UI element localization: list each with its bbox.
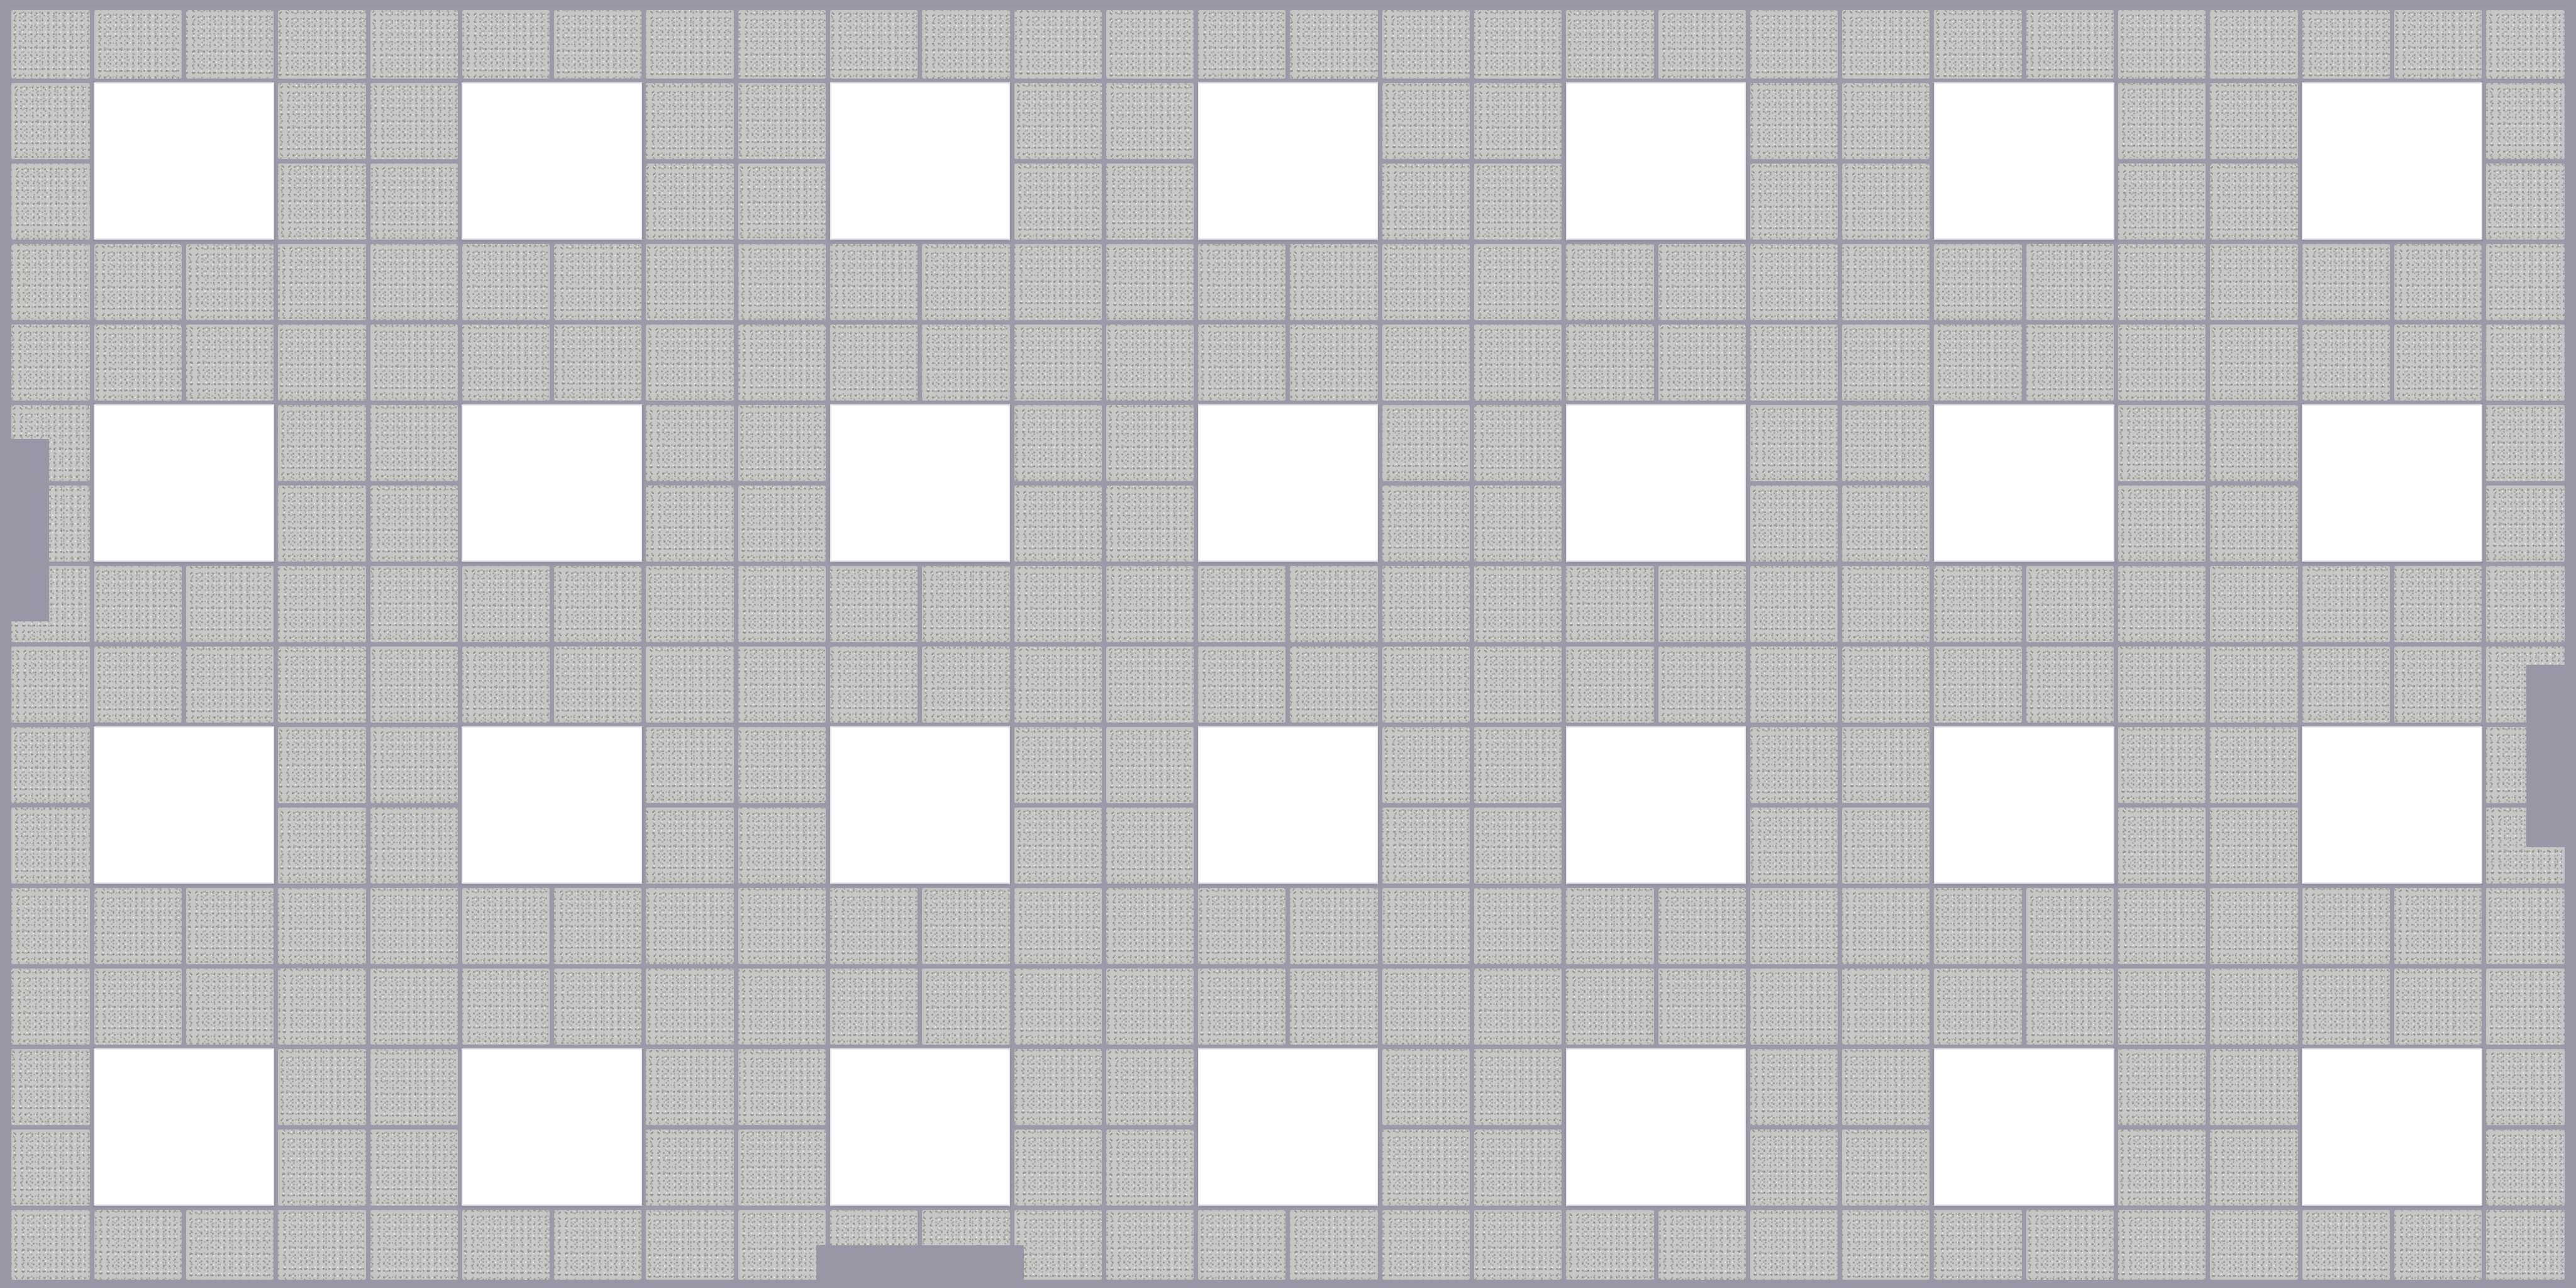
floor-tile xyxy=(1750,405,1838,481)
floor-tile xyxy=(1014,1210,1102,1280)
floor-tile xyxy=(738,244,826,320)
floor-tile xyxy=(1474,83,1562,159)
floor-tile xyxy=(1842,1210,1929,1280)
doorway-right xyxy=(2526,665,2576,847)
floor-tile xyxy=(1842,566,1929,642)
floor-tile xyxy=(94,1210,182,1280)
floor-tile xyxy=(370,808,458,884)
floor-tile xyxy=(11,325,90,401)
floor-tile xyxy=(1750,486,1838,562)
floor-tile xyxy=(370,244,458,320)
pillar-panel xyxy=(1566,82,1746,240)
floor-tile xyxy=(2394,1210,2482,1280)
floor-tile xyxy=(1014,486,1102,562)
floor-tile xyxy=(830,888,918,964)
floor-tile xyxy=(1014,1049,1102,1125)
floor-tile xyxy=(1658,888,1746,964)
floor-tile xyxy=(922,888,1009,964)
floor-tile xyxy=(922,647,1009,723)
floor-tile xyxy=(1934,10,2021,79)
floor-tile xyxy=(370,1130,458,1206)
floor-tile xyxy=(1750,164,1838,240)
floor-tile xyxy=(646,727,733,803)
floor-tile xyxy=(11,164,90,240)
floor-tile xyxy=(2394,244,2482,320)
floor-tile xyxy=(1290,325,1377,401)
floor-tile xyxy=(2210,727,2297,803)
floor-tile xyxy=(2026,647,2114,723)
floor-tile xyxy=(1198,1210,1285,1280)
pillar-panel xyxy=(1566,1048,1746,1206)
floor-tile xyxy=(2026,969,2114,1045)
floor-tile xyxy=(1750,969,1838,1045)
floor-tile xyxy=(370,83,458,159)
floor-tile xyxy=(2302,888,2390,964)
floor-tile xyxy=(922,10,1009,79)
floor-tile xyxy=(1014,647,1102,723)
floor-tile xyxy=(1842,486,1929,562)
floor-tile xyxy=(1014,888,1102,964)
floor-tile xyxy=(2026,244,2114,320)
floor-tile xyxy=(2118,486,2206,562)
pillar-panel xyxy=(94,1048,274,1206)
floor-tile xyxy=(1382,10,1470,79)
floor-tile xyxy=(278,1130,365,1206)
floor-tile xyxy=(1474,727,1562,803)
floor-tile xyxy=(738,325,826,401)
pillar-panel xyxy=(462,82,642,240)
floor-tile xyxy=(2118,808,2206,884)
floor-tile xyxy=(2210,1049,2297,1125)
pillar-panel xyxy=(1566,404,1746,562)
floor-tile xyxy=(2486,405,2565,481)
floor-tile xyxy=(370,325,458,401)
pillar-panel xyxy=(462,726,642,884)
floor-tile xyxy=(2118,969,2206,1045)
floor-tile xyxy=(1290,647,1377,723)
floor-tile xyxy=(2210,566,2297,642)
floor-tile xyxy=(738,10,826,79)
floor-tile xyxy=(2210,83,2297,159)
floor-tile xyxy=(1934,1210,2021,1280)
floor-tile xyxy=(1934,244,2021,320)
floor-tile xyxy=(1842,647,1929,723)
floor-tile xyxy=(2210,1210,2297,1280)
floor-tile xyxy=(1750,1130,1838,1206)
floor-tile xyxy=(370,566,458,642)
floor-tile xyxy=(2394,566,2482,642)
floor-tile xyxy=(186,244,274,320)
floor-tile xyxy=(11,969,90,1045)
floor-tile xyxy=(1566,244,1653,320)
floor-tile xyxy=(370,888,458,964)
floor-tile xyxy=(2486,83,2565,159)
floor-tile xyxy=(1290,1210,1377,1280)
floor-tile xyxy=(738,486,826,562)
floor-tile xyxy=(2026,888,2114,964)
floor-tile xyxy=(370,405,458,481)
floor-tile xyxy=(1382,566,1470,642)
floor-tile xyxy=(1106,10,1194,79)
floor-tile xyxy=(738,888,826,964)
floor-tile xyxy=(1750,808,1838,884)
floor-tile xyxy=(1842,969,1929,1045)
floor-tile xyxy=(646,888,733,964)
floor-tile xyxy=(1474,808,1562,884)
pillar-panel xyxy=(1198,82,1379,240)
floor-tile xyxy=(278,808,365,884)
floor-tile xyxy=(1842,10,1929,79)
floor-tile xyxy=(830,10,918,79)
floor-tile xyxy=(2210,647,2297,723)
floor-tile xyxy=(1842,1130,1929,1206)
floor-tile xyxy=(370,1049,458,1125)
pillar-panel xyxy=(94,82,274,240)
floor-tile xyxy=(1842,1049,1929,1125)
floor-tile xyxy=(738,969,826,1045)
floor-tile xyxy=(646,969,733,1045)
floor-tile xyxy=(738,1130,826,1206)
floor-tile xyxy=(646,1049,733,1125)
floor-tile xyxy=(462,647,550,723)
floor-tile xyxy=(2394,325,2482,401)
floor-tile xyxy=(370,647,458,723)
floor-tile xyxy=(370,10,458,79)
floor-tile xyxy=(1106,727,1194,803)
pillar-panel xyxy=(1566,726,1746,884)
floor-tile xyxy=(2486,1210,2565,1280)
floor-tile xyxy=(738,1049,826,1125)
floor-tile xyxy=(1382,164,1470,240)
floor-tile xyxy=(370,727,458,803)
floor-tile xyxy=(278,566,365,642)
floor-tile xyxy=(278,1210,365,1280)
floor-tile xyxy=(186,10,274,79)
floor-tile xyxy=(554,969,641,1045)
floor-tile xyxy=(1198,325,1285,401)
floor-tile xyxy=(2210,164,2297,240)
floor-tile xyxy=(1566,1210,1653,1280)
floor-tile xyxy=(1566,969,1653,1045)
floor-tile xyxy=(11,888,90,964)
floor-tile xyxy=(278,405,365,481)
floor-tile xyxy=(278,244,365,320)
floor-tile xyxy=(1474,566,1562,642)
floor-tile xyxy=(2026,325,2114,401)
floor-tile xyxy=(830,647,918,723)
floor-tile xyxy=(554,325,641,401)
floor-tile xyxy=(2486,888,2565,964)
floor-tile xyxy=(1750,1049,1838,1125)
pillar-panel xyxy=(462,404,642,562)
floor-tile xyxy=(370,1210,458,1280)
floor-tile xyxy=(2302,10,2390,79)
doorway-bottom xyxy=(816,1245,1024,1288)
floor-tile xyxy=(2302,969,2390,1045)
floor-tile xyxy=(1382,969,1470,1045)
floor-tile xyxy=(1474,405,1562,481)
floor-tile xyxy=(1382,647,1470,723)
floor-tile xyxy=(1106,325,1194,401)
floor-tile xyxy=(94,566,182,642)
floor-tile xyxy=(1750,727,1838,803)
floor-tile xyxy=(1106,244,1194,320)
floor-tile xyxy=(2118,325,2206,401)
floor-tile xyxy=(1750,888,1838,964)
floor-tile xyxy=(462,969,550,1045)
floor-tile xyxy=(1566,10,1653,79)
doorway-left xyxy=(0,439,49,621)
floor-tile xyxy=(1658,1210,1746,1280)
pillar-panel xyxy=(830,1048,1011,1206)
floor-tile xyxy=(2394,647,2482,723)
floor-tile xyxy=(554,647,641,723)
floor-tile xyxy=(2302,1210,2390,1280)
floor-tile xyxy=(2118,888,2206,964)
floor-tile xyxy=(1658,566,1746,642)
pillar-panel xyxy=(830,82,1011,240)
floor-tile xyxy=(1014,1130,1102,1206)
floor-tile xyxy=(1290,969,1377,1045)
floor-tile xyxy=(11,1210,90,1280)
floor-tile xyxy=(2118,1210,2206,1280)
floor-tile xyxy=(922,244,1009,320)
pillar-panel xyxy=(94,404,274,562)
floor-tile xyxy=(1106,969,1194,1045)
floor-tile xyxy=(2210,405,2297,481)
floor-tile xyxy=(2486,1130,2565,1206)
floor-tile xyxy=(1198,10,1285,79)
floor-tile xyxy=(830,566,918,642)
floor-tile xyxy=(1566,647,1653,723)
floor-tile xyxy=(922,325,1009,401)
floor-tile xyxy=(462,244,550,320)
floor-tile xyxy=(1198,244,1285,320)
floor-tile xyxy=(1842,244,1929,320)
floor-tile xyxy=(1382,244,1470,320)
pillar-panel xyxy=(1198,1048,1379,1206)
floor-tile xyxy=(1474,647,1562,723)
floor-tile xyxy=(1842,164,1929,240)
floor-tile xyxy=(646,10,733,79)
floor-tile xyxy=(554,566,641,642)
floor-tile xyxy=(646,244,733,320)
pillar-panel xyxy=(2302,82,2482,240)
wall-bottom xyxy=(0,1280,2576,1288)
pillar-panel xyxy=(2302,726,2482,884)
floor-tile xyxy=(1934,647,2021,723)
floor-tile xyxy=(2210,969,2297,1045)
floor-tile xyxy=(1014,808,1102,884)
floor-tile xyxy=(186,566,274,642)
floor-tile xyxy=(1106,1049,1194,1125)
floor-tile xyxy=(2210,244,2297,320)
floor-tile xyxy=(646,164,733,240)
floor-tile xyxy=(2118,83,2206,159)
floor-tile xyxy=(1014,83,1102,159)
pillar-panel xyxy=(2302,1048,2482,1206)
floor-tile xyxy=(1750,244,1838,320)
floor-tile xyxy=(1658,325,1746,401)
floor-tile xyxy=(11,10,90,79)
floor-tile xyxy=(462,1210,550,1280)
floor-tile xyxy=(1474,10,1562,79)
floor-tile xyxy=(1106,888,1194,964)
floor-tile xyxy=(646,486,733,562)
floor-tile xyxy=(2486,244,2565,320)
pillar-panel xyxy=(830,404,1011,562)
floor-tile xyxy=(1382,486,1470,562)
floor-tile xyxy=(278,486,365,562)
floor-tile xyxy=(738,83,826,159)
floor-tile xyxy=(2118,405,2206,481)
floor-tile xyxy=(1842,808,1929,884)
floor-tile xyxy=(1382,405,1470,481)
floor-tile xyxy=(1382,1130,1470,1206)
floor-tile xyxy=(738,405,826,481)
floor-tile xyxy=(1842,727,1929,803)
floor-tile xyxy=(1106,486,1194,562)
floor-tile xyxy=(830,325,918,401)
floor-tile xyxy=(2486,10,2565,79)
floor-tile xyxy=(278,727,365,803)
floor-tile xyxy=(922,969,1009,1045)
floor-tile xyxy=(2026,1210,2114,1280)
floor-tile xyxy=(1014,405,1102,481)
floor-tile xyxy=(1566,325,1653,401)
floor-tile xyxy=(1474,1210,1562,1280)
floor-tile xyxy=(1382,83,1470,159)
floor-tile xyxy=(646,405,733,481)
floor-tile xyxy=(554,10,641,79)
floor-tile xyxy=(462,566,550,642)
pillar-panel xyxy=(2302,404,2482,562)
floor-tile xyxy=(646,83,733,159)
floor-tile xyxy=(1750,83,1838,159)
floor-tile xyxy=(462,888,550,964)
floor-tile xyxy=(830,969,918,1045)
floor-tile xyxy=(94,244,182,320)
floor-tile xyxy=(1382,888,1470,964)
floor-tile xyxy=(1566,566,1653,642)
floor-tile xyxy=(738,1210,826,1280)
floor-tile xyxy=(278,83,365,159)
floor-tile xyxy=(1842,325,1929,401)
floor-tile xyxy=(1566,888,1653,964)
floor-tile xyxy=(1934,566,2021,642)
floor-tile xyxy=(1750,647,1838,723)
floor-tile xyxy=(1014,325,1102,401)
floor-tile xyxy=(1014,566,1102,642)
floor-tile xyxy=(1474,244,1562,320)
floor-tile xyxy=(2486,566,2565,642)
floor-tile xyxy=(94,647,182,723)
floor-tile xyxy=(186,325,274,401)
floor-tile xyxy=(2118,1049,2206,1125)
floor-tile xyxy=(738,164,826,240)
floor-tile xyxy=(1382,727,1470,803)
floor-tile xyxy=(278,1049,365,1125)
floor-tile xyxy=(186,1210,274,1280)
pillar-panel xyxy=(462,1048,642,1206)
floor-tile xyxy=(738,566,826,642)
floor-tile xyxy=(2118,244,2206,320)
floor-tile xyxy=(1474,325,1562,401)
floor-tile xyxy=(1934,325,2021,401)
floor-tile xyxy=(738,808,826,884)
floor-tile xyxy=(1198,647,1285,723)
floor-tile xyxy=(462,325,550,401)
floor-tile xyxy=(2118,647,2206,723)
floor-tile xyxy=(2486,1049,2565,1125)
floor-tile xyxy=(94,10,182,79)
floor-tile xyxy=(1106,566,1194,642)
floor-tile xyxy=(278,325,365,401)
floor-tile xyxy=(646,1130,733,1206)
floor-tile xyxy=(1750,325,1838,401)
floor-tile xyxy=(1842,83,1929,159)
floor-tile xyxy=(2302,647,2390,723)
floor-tile xyxy=(2210,325,2297,401)
floor-tile xyxy=(2486,486,2565,562)
floor-tile xyxy=(278,647,365,723)
floor-tile xyxy=(278,969,365,1045)
pillar-panel xyxy=(1934,726,2114,884)
floor-tile xyxy=(1106,1130,1194,1206)
floor-tile xyxy=(2394,888,2482,964)
floor-tile xyxy=(1014,727,1102,803)
floor-tile xyxy=(1658,969,1746,1045)
floor-tile xyxy=(11,83,90,159)
floor-tile xyxy=(2118,727,2206,803)
pillar-panel xyxy=(1934,82,2114,240)
floor-tile xyxy=(830,244,918,320)
floor-tile xyxy=(2210,486,2297,562)
floor-tile xyxy=(646,808,733,884)
floor-tile xyxy=(1842,888,1929,964)
floor-tile xyxy=(11,727,90,803)
floor-tile xyxy=(1474,1049,1562,1125)
floor-tile xyxy=(1014,10,1102,79)
floor-tile xyxy=(2302,244,2390,320)
floor-tile xyxy=(1750,566,1838,642)
floor-tile xyxy=(1290,244,1377,320)
floor-tile xyxy=(1382,325,1470,401)
floor-tile xyxy=(462,10,550,79)
floor-tile xyxy=(2486,325,2565,401)
floor-tile xyxy=(1290,566,1377,642)
floor-tile xyxy=(11,1130,90,1206)
floor-tile xyxy=(11,808,90,884)
floor-tile xyxy=(278,888,365,964)
floor-tile xyxy=(11,1049,90,1125)
pillar-panel xyxy=(1198,726,1379,884)
pillar-panel xyxy=(1934,1048,2114,1206)
floor-tile xyxy=(1474,888,1562,964)
floor-tile xyxy=(1014,969,1102,1045)
floor-tile xyxy=(2302,325,2390,401)
floor-tile xyxy=(2118,1130,2206,1206)
floor-tile xyxy=(1290,10,1377,79)
floor-tile xyxy=(2118,566,2206,642)
pillar-panel xyxy=(1198,404,1379,562)
floor-tile xyxy=(1198,888,1285,964)
floor-tile xyxy=(1474,969,1562,1045)
pillar-panel xyxy=(830,726,1011,884)
floor-tile xyxy=(646,566,733,642)
floor-tile xyxy=(370,969,458,1045)
floor-tile xyxy=(1750,10,1838,79)
